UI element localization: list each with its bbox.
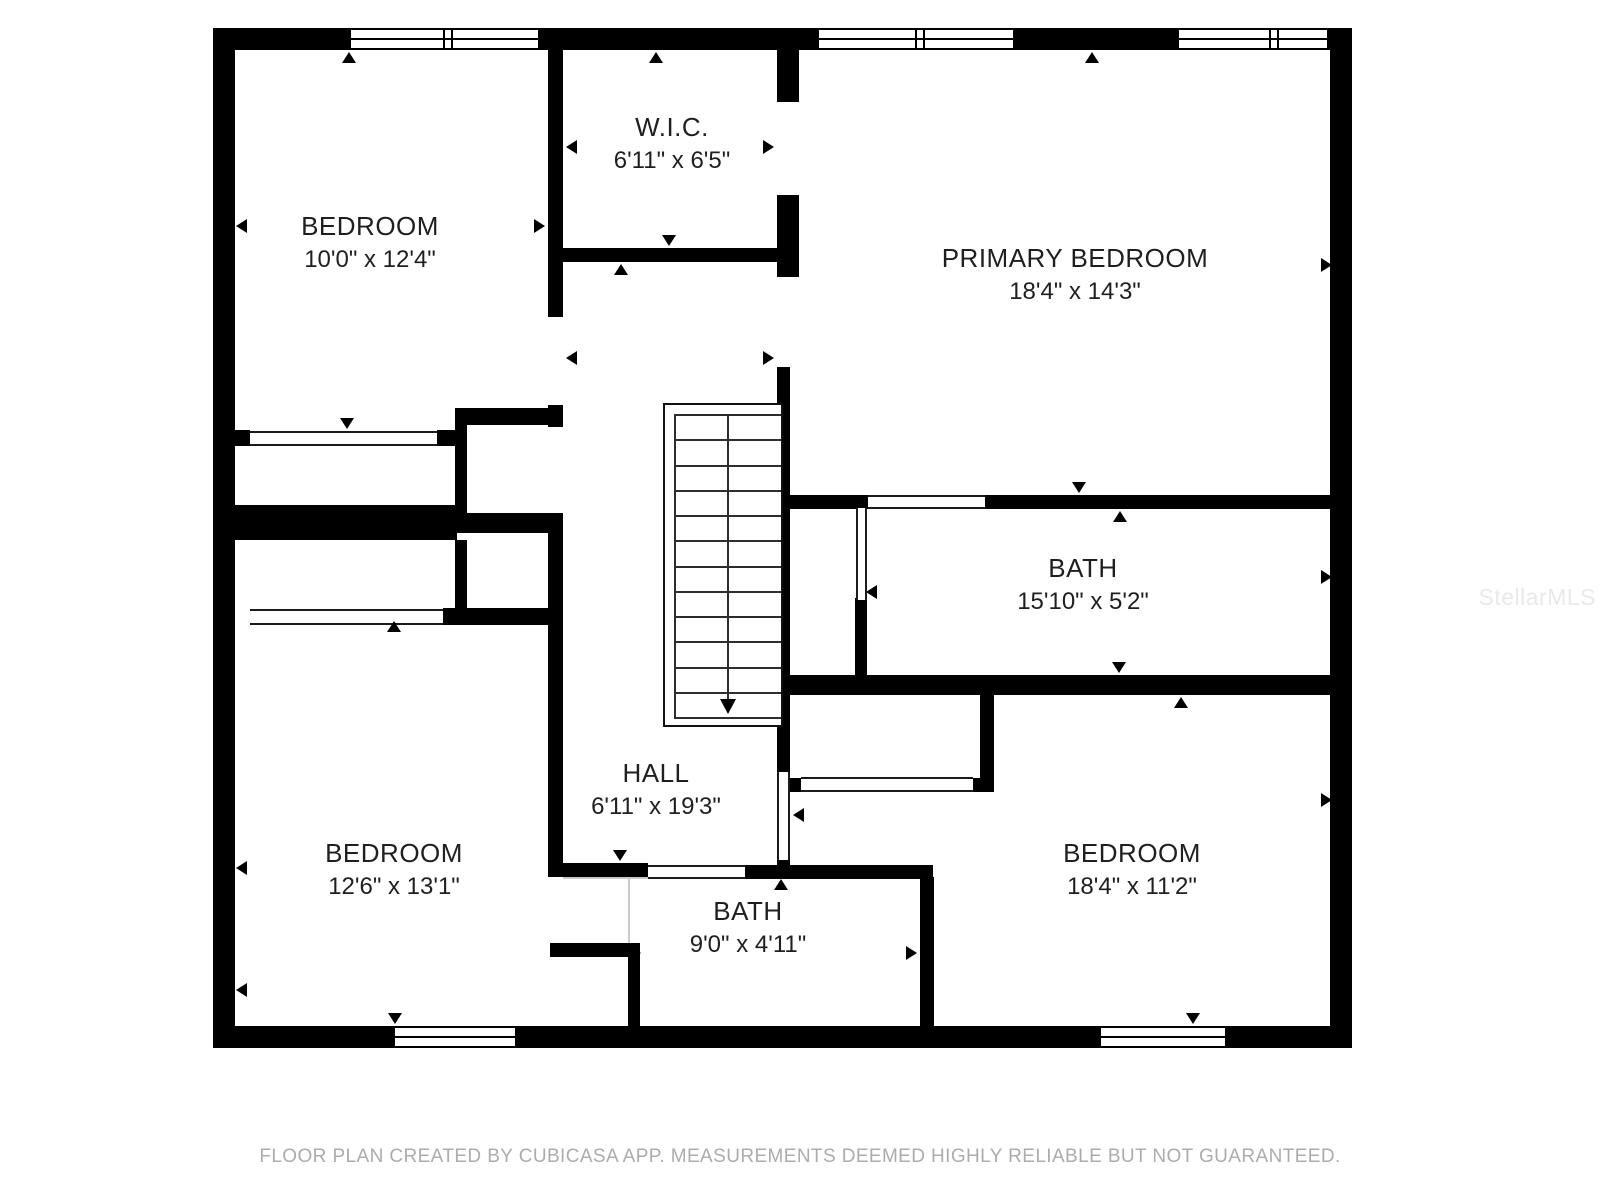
wall	[548, 50, 563, 317]
room-name: BATH	[1017, 551, 1149, 585]
room-dimensions: 9'0" x 4'11"	[690, 928, 807, 962]
up-marker-icon	[614, 264, 628, 275]
down-marker-icon	[1072, 482, 1086, 493]
right-marker-icon	[1321, 793, 1332, 807]
room-name: BEDROOM	[301, 209, 439, 243]
watermark: StellarMLS	[1479, 584, 1596, 611]
room-dimensions: 18'4" x 14'3"	[942, 275, 1209, 309]
wall	[548, 625, 563, 877]
door-opening	[777, 772, 790, 860]
right-marker-icon	[534, 219, 545, 233]
room-dimensions: 6'11" x 6'5"	[614, 144, 731, 178]
room-dimensions: 6'11" x 19'3"	[591, 790, 721, 824]
left-marker-icon	[236, 219, 247, 233]
room-dimensions: 18'4" x 11'2"	[1063, 870, 1201, 904]
right-marker-icon	[763, 351, 774, 365]
room-name: BEDROOM	[325, 836, 463, 870]
door-opening	[250, 431, 437, 446]
wall	[745, 865, 933, 879]
wall	[543, 28, 814, 50]
wall	[777, 50, 799, 102]
wall	[973, 778, 994, 792]
wall	[548, 863, 648, 877]
wall	[1330, 28, 1352, 1048]
window-mullion	[451, 30, 453, 48]
room-boundary-line	[563, 877, 648, 879]
up-marker-icon	[1113, 511, 1127, 522]
right-marker-icon	[1321, 570, 1332, 584]
up-marker-icon	[387, 621, 401, 632]
wall	[550, 943, 640, 957]
wall	[213, 505, 457, 540]
wall	[1230, 1026, 1352, 1048]
wall	[443, 608, 563, 625]
wall	[520, 1026, 1096, 1048]
room-name: BATH	[690, 894, 807, 928]
window	[346, 28, 543, 50]
wall	[777, 195, 799, 277]
window	[1174, 28, 1332, 50]
wall	[455, 513, 560, 533]
down-marker-icon	[388, 1013, 402, 1024]
wall	[213, 1026, 390, 1048]
wall	[213, 28, 346, 50]
right-marker-icon	[629, 983, 640, 997]
room-boundary-line	[628, 877, 630, 943]
wall	[920, 877, 934, 1026]
window	[390, 1026, 520, 1048]
left-marker-icon	[566, 140, 577, 154]
wall	[788, 495, 868, 509]
window-glass-line	[1101, 1036, 1225, 1038]
down-marker-icon	[1186, 1013, 1200, 1024]
window-mullion	[1269, 30, 1271, 48]
room-name: PRIMARY BEDROOM	[942, 241, 1209, 275]
footer-disclaimer: FLOOR PLAN CREATED BY CUBICASA APP. MEAS…	[0, 1146, 1600, 1168]
window-mullion	[1277, 30, 1279, 48]
up-marker-icon	[1085, 52, 1099, 63]
left-marker-icon	[793, 808, 804, 822]
floor-plan-drawing: BEDROOM10'0" x 12'4"W.I.C.6'11" x 6'5"PR…	[0, 0, 1600, 1200]
room-name: HALL	[591, 756, 721, 790]
wall	[455, 408, 560, 425]
stair-direction-line	[727, 414, 729, 701]
up-marker-icon	[774, 879, 788, 890]
left-marker-icon	[236, 983, 247, 997]
down-marker-icon	[1112, 662, 1126, 673]
door-opening	[250, 609, 443, 625]
up-marker-icon	[649, 52, 663, 63]
stair-down-arrow-icon	[720, 699, 736, 714]
wall	[562, 248, 799, 262]
left-marker-icon	[566, 351, 577, 365]
room-dimensions: 15'10" x 5'2"	[1017, 585, 1149, 619]
left-marker-icon	[866, 585, 877, 599]
window-glass-line	[1179, 38, 1327, 40]
room-dimensions: 12'6" x 13'1"	[325, 870, 463, 904]
staircase	[663, 403, 783, 727]
window-glass-line	[395, 1036, 515, 1038]
stair-tread	[674, 717, 781, 719]
wall	[235, 430, 250, 446]
down-marker-icon	[340, 418, 354, 429]
room-label: BEDROOM10'0" x 12'4"	[301, 209, 439, 277]
window	[1096, 1026, 1230, 1048]
down-marker-icon	[662, 235, 676, 246]
room-name: BEDROOM	[1063, 836, 1201, 870]
floor-plan: BEDROOM10'0" x 12'4"W.I.C.6'11" x 6'5"PR…	[0, 0, 1600, 1200]
room-label: BATH15'10" x 5'2"	[1017, 551, 1149, 619]
left-marker-icon	[236, 861, 247, 875]
room-label: BEDROOM18'4" x 11'2"	[1063, 836, 1201, 904]
room-label: PRIMARY BEDROOM18'4" x 14'3"	[942, 241, 1209, 309]
window-mullion	[443, 30, 445, 48]
wall	[437, 430, 457, 446]
room-name: W.I.C.	[614, 110, 731, 144]
right-marker-icon	[763, 140, 774, 154]
door-opening	[648, 865, 745, 879]
wall	[548, 405, 563, 427]
room-dimensions: 10'0" x 12'4"	[301, 243, 439, 277]
wall	[788, 675, 1352, 695]
room-label: W.I.C.6'11" x 6'5"	[614, 110, 731, 178]
right-marker-icon	[1321, 258, 1332, 272]
room-label: BEDROOM12'6" x 13'1"	[325, 836, 463, 904]
down-marker-icon	[613, 850, 627, 861]
right-marker-icon	[630, 946, 641, 960]
window	[814, 28, 1018, 50]
door-opening	[801, 777, 973, 792]
room-label: BATH9'0" x 4'11"	[690, 894, 807, 962]
door-opening	[868, 495, 985, 509]
window-mullion	[915, 30, 917, 48]
up-marker-icon	[1174, 697, 1188, 708]
window-mullion	[923, 30, 925, 48]
wall	[985, 495, 1352, 509]
right-marker-icon	[906, 946, 917, 960]
wall	[855, 598, 867, 675]
wall	[980, 690, 994, 790]
wall	[455, 408, 467, 528]
room-label: HALL6'11" x 19'3"	[591, 756, 721, 824]
wall	[1018, 28, 1174, 50]
up-marker-icon	[342, 52, 356, 63]
